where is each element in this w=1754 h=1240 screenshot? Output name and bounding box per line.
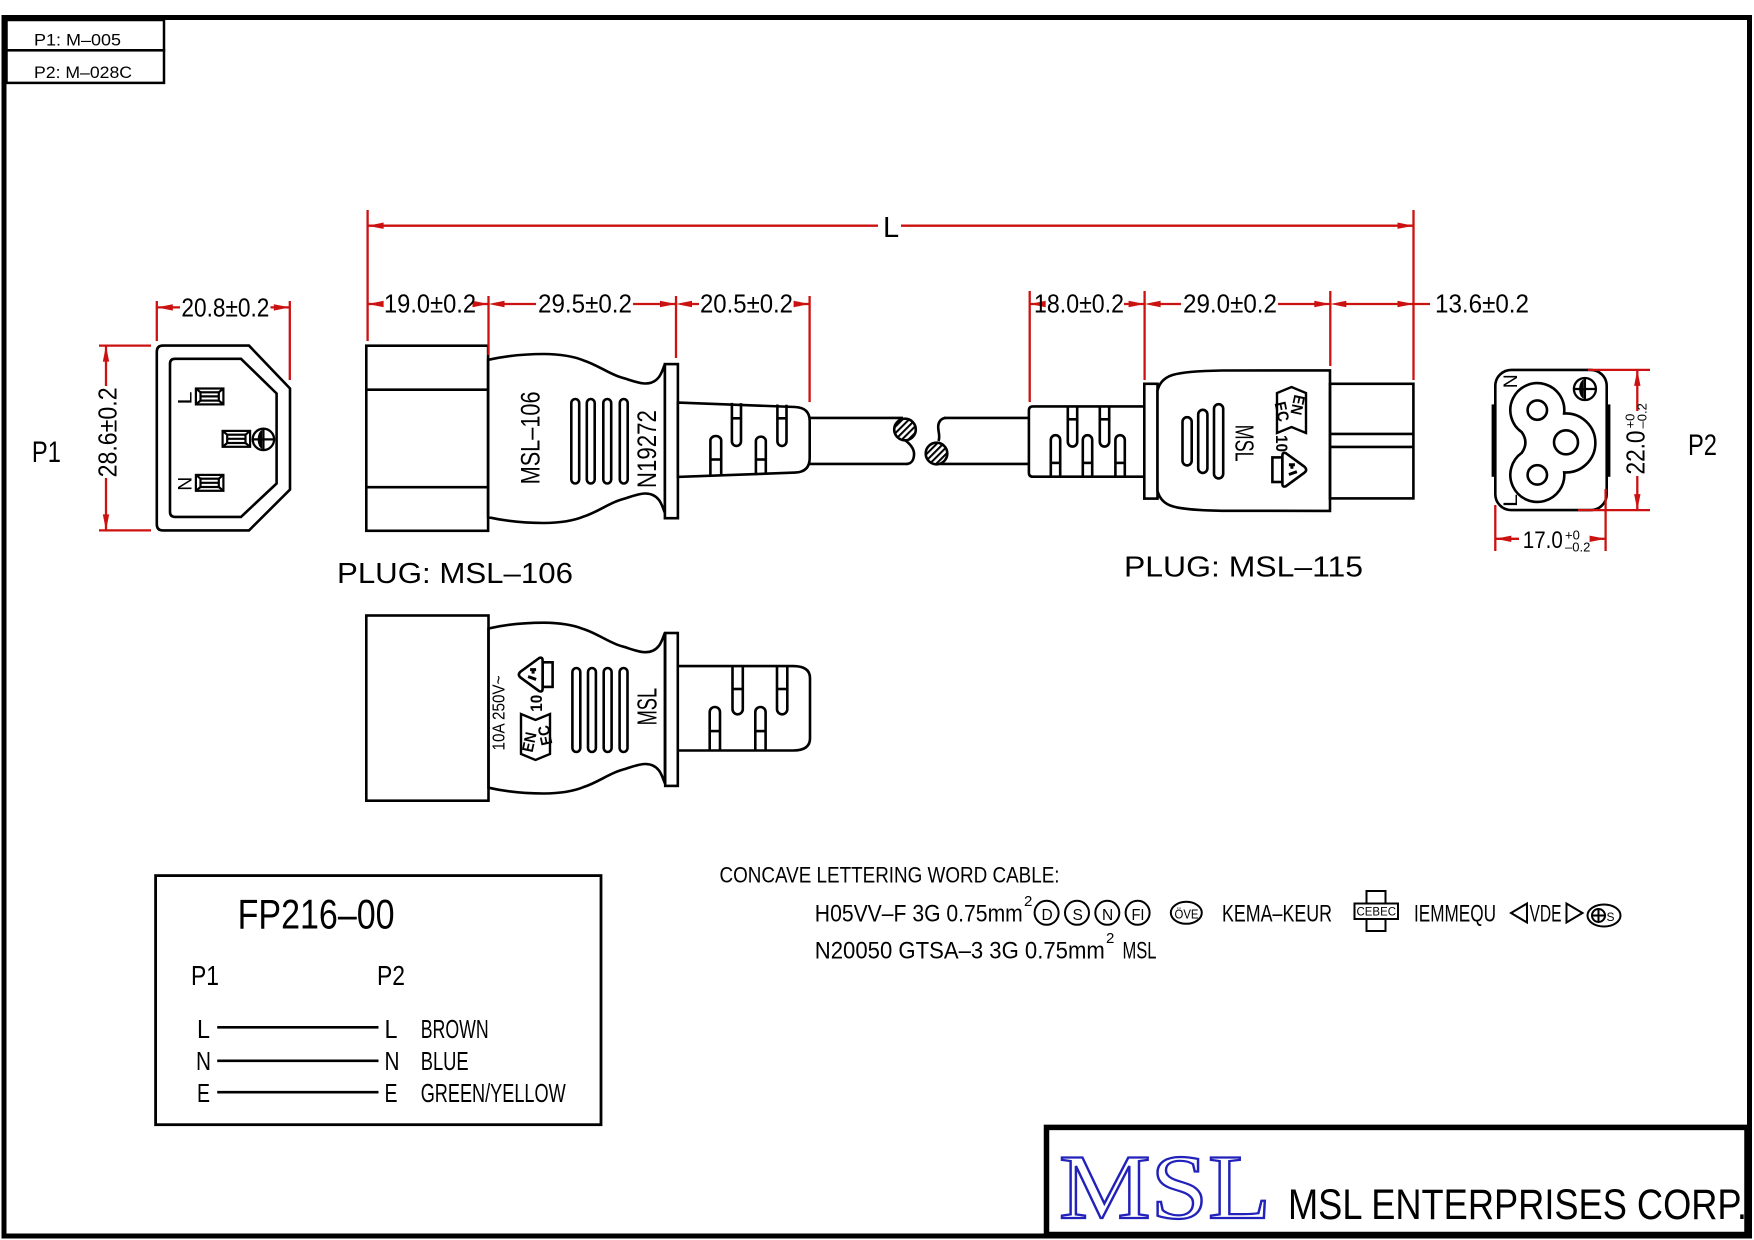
svg-text:BROWN: BROWN (421, 1014, 489, 1044)
svg-text:S: S (1073, 907, 1083, 924)
svg-text:MSL: MSL (1123, 937, 1157, 964)
svg-text:N20050 GTSA–3 3G 0.75mm: N20050 GTSA–3 3G 0.75mm (815, 937, 1105, 964)
svg-text:P1: M–005: P1: M–005 (34, 31, 121, 50)
svg-text:2: 2 (1106, 930, 1114, 947)
svg-text:MSL ENTERPRISES CORP.: MSL ENTERPRISES CORP. (1288, 1181, 1747, 1229)
svg-text:–0.2: –0.2 (1565, 540, 1590, 555)
svg-text:N: N (175, 477, 196, 491)
svg-text:P2: M–028C: P2: M–028C (34, 63, 132, 82)
svg-text:L: L (883, 212, 899, 244)
svg-text:S: S (1607, 910, 1615, 924)
svg-text:H05VV–F 3G 0.75mm: H05VV–F 3G 0.75mm (815, 901, 1023, 928)
svg-text:PLUG: MSL–115: PLUG: MSL–115 (1124, 552, 1363, 584)
svg-text:MSL–106: MSL–106 (516, 391, 546, 484)
svg-text:L: L (385, 1014, 398, 1044)
svg-text:EC: EC (536, 723, 557, 746)
svg-text:VDE: VDE (1530, 901, 1562, 928)
svg-text:D: D (1042, 907, 1053, 924)
svg-text:20.5±0.2: 20.5±0.2 (700, 289, 793, 319)
svg-text:2: 2 (1024, 893, 1032, 910)
svg-text:E: E (197, 1078, 210, 1108)
svg-text:P1: P1 (32, 436, 61, 469)
svg-text:N: N (385, 1046, 400, 1076)
svg-text:28.6±0.2: 28.6±0.2 (93, 387, 123, 477)
svg-text:29.0±0.2: 29.0±0.2 (1183, 289, 1277, 319)
svg-text:MSL: MSL (1229, 425, 1257, 462)
svg-text:PLUG: MSL–106: PLUG: MSL–106 (337, 558, 573, 590)
svg-text:N19272: N19272 (632, 410, 662, 488)
svg-text:20.8±0.2: 20.8±0.2 (181, 293, 269, 323)
svg-text:19.0±0.2: 19.0±0.2 (384, 289, 476, 319)
svg-text:MSL: MSL (632, 688, 663, 726)
svg-text:N: N (1501, 374, 1522, 388)
svg-text:10: 10 (527, 695, 546, 712)
svg-text:L: L (175, 392, 196, 405)
svg-text:N: N (196, 1046, 211, 1076)
svg-text:22.0: 22.0 (1621, 431, 1651, 475)
svg-text:ÖVE: ÖVE (1175, 907, 1199, 922)
svg-text:CEBEC: CEBEC (1357, 907, 1397, 919)
svg-text:BLUE: BLUE (421, 1046, 469, 1076)
svg-text:KEMA–KEUR: KEMA–KEUR (1222, 901, 1332, 928)
svg-text:10A 250V~: 10A 250V~ (489, 676, 509, 751)
svg-text:10: 10 (1272, 435, 1291, 452)
svg-text:GREEN/YELLOW: GREEN/YELLOW (421, 1078, 566, 1108)
svg-text:E: E (385, 1078, 398, 1108)
svg-text:P1: P1 (191, 960, 219, 991)
svg-text:29.5±0.2: 29.5±0.2 (538, 289, 632, 319)
svg-text:L: L (1501, 494, 1522, 507)
svg-text:13.6±0.2: 13.6±0.2 (1435, 289, 1529, 319)
svg-text:P2: P2 (377, 960, 405, 991)
svg-text:17.0: 17.0 (1523, 527, 1563, 554)
svg-text:FI: FI (1132, 907, 1145, 924)
svg-text:L: L (197, 1014, 210, 1044)
svg-text:CONCAVE LETTERING WORD CABLE:: CONCAVE LETTERING WORD CABLE: (720, 863, 1060, 888)
svg-text:–0.2: –0.2 (1635, 403, 1650, 428)
svg-text:IEMMEQU: IEMMEQU (1414, 901, 1496, 928)
svg-text:P2: P2 (1688, 429, 1717, 462)
svg-text:N: N (1102, 907, 1113, 924)
svg-text:18.0±0.2: 18.0±0.2 (1034, 289, 1124, 319)
svg-text:MSL: MSL (1059, 1136, 1271, 1238)
svg-text:FP216–00: FP216–00 (238, 891, 395, 938)
